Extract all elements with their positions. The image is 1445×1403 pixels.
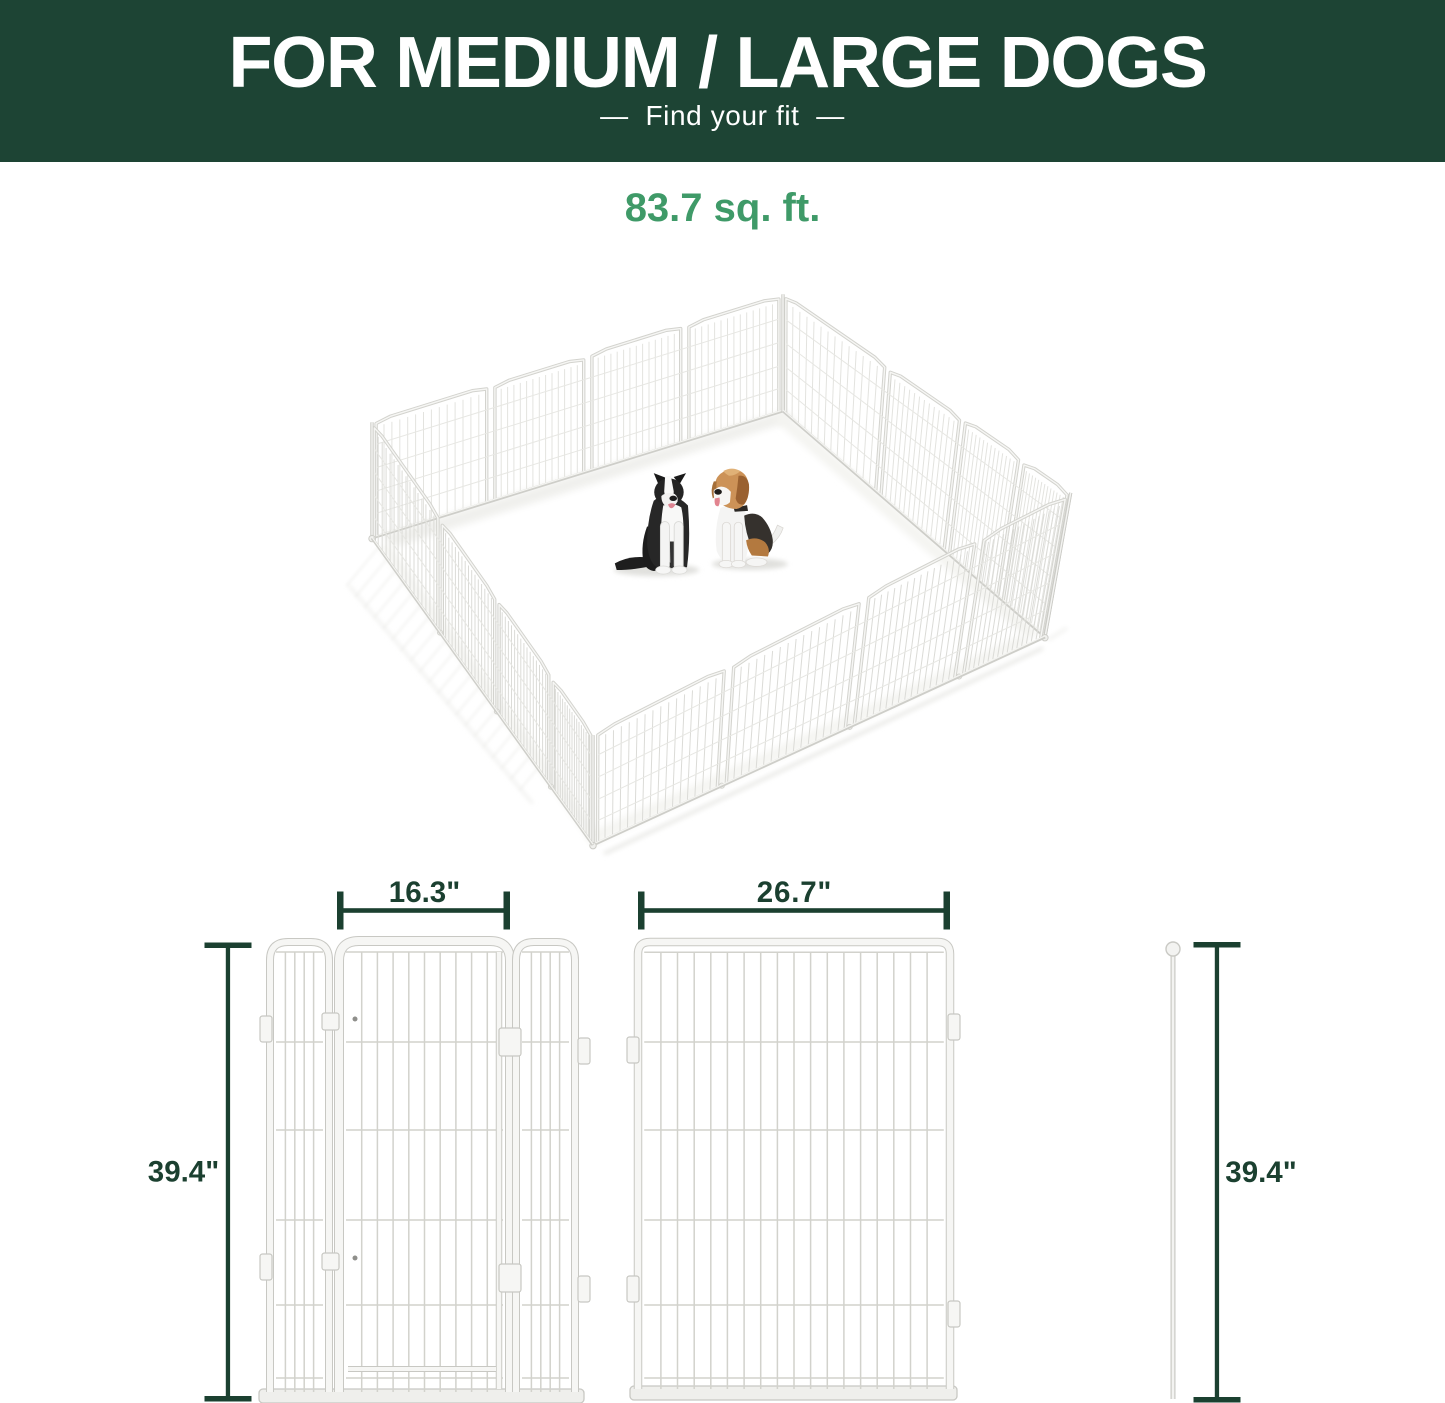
- svg-text:26.7": 26.7": [757, 876, 832, 909]
- svg-text:39.4": 39.4": [1225, 1156, 1296, 1189]
- svg-text:16.3": 16.3": [389, 876, 460, 909]
- svg-text:39.4": 39.4": [148, 1156, 219, 1189]
